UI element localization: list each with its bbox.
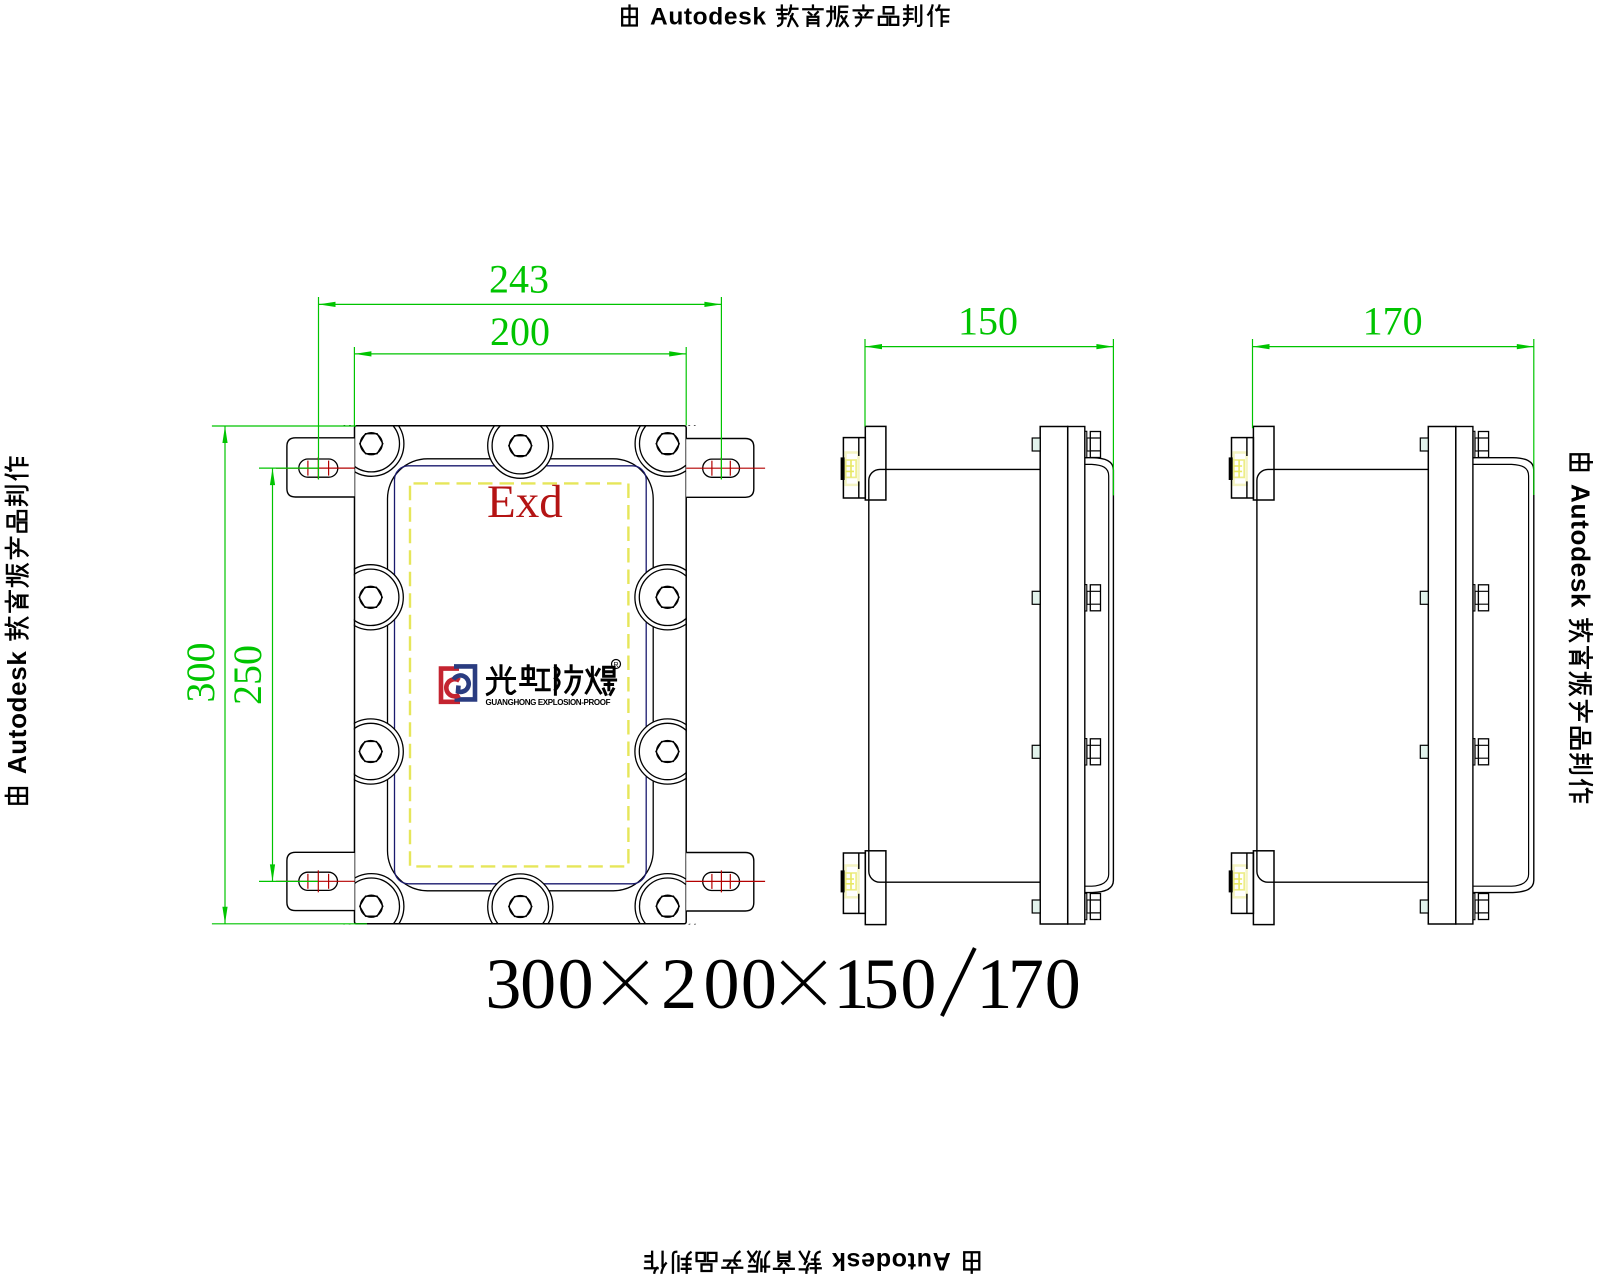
svg-text:200: 200	[490, 309, 550, 354]
svg-text:0: 0	[1045, 944, 1081, 1024]
svg-text:3: 3	[485, 944, 521, 1024]
svg-text:5: 5	[863, 944, 899, 1024]
svg-text:2: 2	[661, 944, 697, 1024]
svg-text:Exd: Exd	[487, 476, 563, 528]
svg-text:7: 7	[1008, 944, 1044, 1024]
svg-text:GUANGHONG EXPLOSION-PROOF: GUANGHONG EXPLOSION-PROOF	[486, 698, 611, 707]
svg-text:0: 0	[520, 944, 556, 1024]
svg-text:0: 0	[900, 944, 936, 1024]
svg-text:Autodesk: Autodesk	[832, 1247, 951, 1275]
svg-text:170: 170	[1363, 299, 1423, 344]
svg-text:0: 0	[558, 944, 594, 1024]
svg-text:150: 150	[958, 299, 1018, 344]
svg-text:243: 243	[489, 257, 549, 302]
svg-text:300: 300	[178, 643, 223, 703]
svg-text:Autodesk: Autodesk	[2, 651, 32, 775]
svg-text:250: 250	[225, 645, 270, 705]
svg-text:Autodesk: Autodesk	[1566, 484, 1596, 608]
svg-text:0: 0	[741, 944, 777, 1024]
svg-text:0: 0	[704, 944, 740, 1024]
svg-text:Autodesk: Autodesk	[650, 4, 766, 31]
svg-text:R: R	[613, 662, 618, 669]
